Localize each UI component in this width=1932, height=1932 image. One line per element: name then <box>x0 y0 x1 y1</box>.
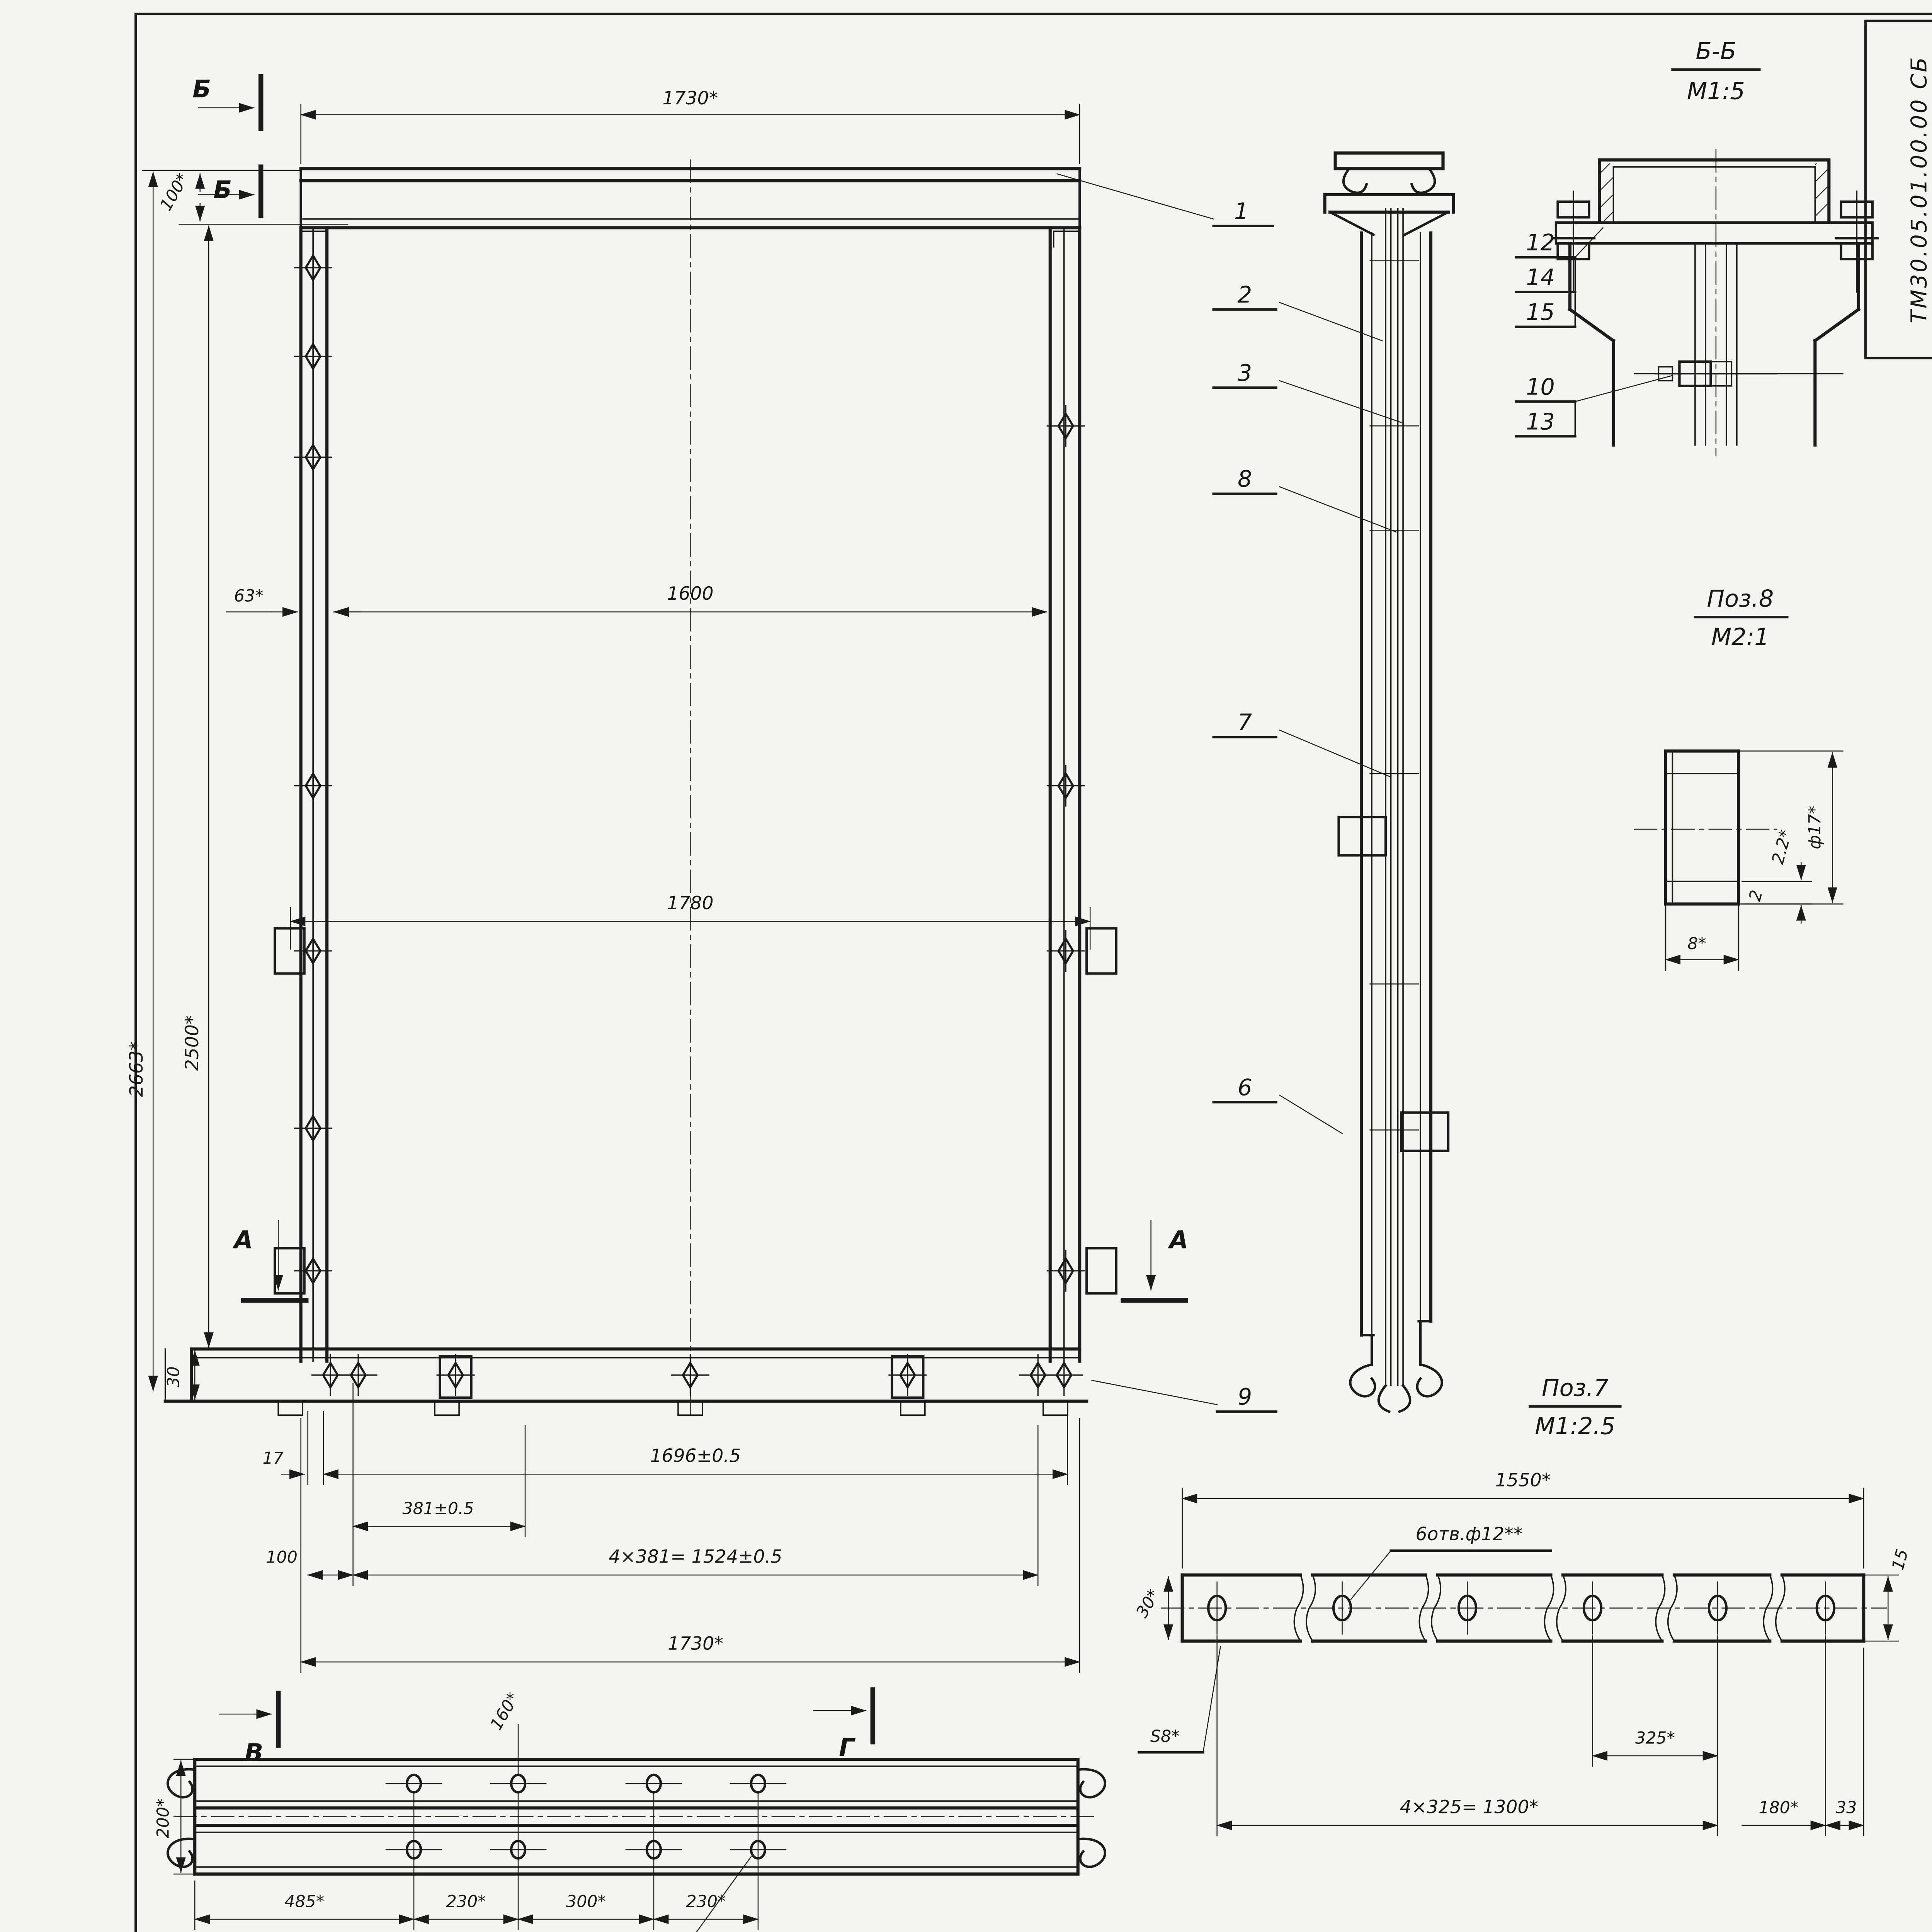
pos7-holes: 6отв.ф12** <box>1415 1524 1522 1545</box>
pos7-thickness: S8* <box>1150 1727 1180 1746</box>
section-marker-g: Г <box>839 1733 855 1762</box>
section-marker-b-upper: Б <box>192 75 211 103</box>
callout-2: 2 <box>1238 282 1252 308</box>
front-view: 1730* Б Б 100* 2663* 2500* 63* 1600 <box>126 75 1276 1767</box>
dim-width-outer: 1780 <box>667 893 713 914</box>
pos8-dimensions: ф17* 2.2* 2 8* <box>1665 751 1843 960</box>
pos7-dim-length: 1550* <box>1495 1470 1551 1491</box>
side-view-geometry <box>1325 153 1454 1412</box>
pos7-dim-step: 325* <box>1635 1729 1675 1748</box>
pos7-scale: М1:2.5 <box>1535 1413 1615 1440</box>
dim-bottom-span: 1696±0.5 <box>650 1446 741 1467</box>
plan-dim-160: 160* <box>486 1689 523 1733</box>
front-view-dimensions: 1730* Б Б 100* 2663* 2500* 63* 1600 <box>126 75 1276 1767</box>
side-view: 2 3 8 7 6 <box>1214 153 1454 1412</box>
dim-edge-17: 17 <box>262 1449 283 1468</box>
plan-view-dimensions: 200* 160* 485* 230* 300* 230* 8отв. ф14* <box>154 1689 758 1932</box>
section-marker-a-left: А <box>232 1226 253 1254</box>
callout-9: 9 <box>1238 1384 1252 1410</box>
pos7-title: Поз.7 <box>1542 1375 1609 1402</box>
pos8-detail: Поз.8 М2:1 ф17* 2.2* 2 8* <box>1634 585 1843 970</box>
dim-bottom-module: 4×381= 1524±0.5 <box>609 1546 782 1568</box>
callout-12: 12 <box>1526 230 1554 256</box>
callout-1: 1 <box>1234 198 1248 224</box>
dim-top-offset: 100* <box>156 170 193 214</box>
drawing-sheet: ТМ30.05.01.00.00 СБ <box>0 0 1932 1932</box>
pos7-dimensions: 1550* 6отв.ф12** 30* S8* 325* 4×325= 130… <box>1132 1470 1912 1836</box>
plan-dim-230a: 230* <box>446 1892 486 1911</box>
pos7-dim-180: 180* <box>1759 1798 1798 1818</box>
callout-3: 3 <box>1238 360 1252 386</box>
plan-dim-height: 200* <box>154 1799 173 1838</box>
drawing-canvas: ТМ30.05.01.00.00 СБ <box>0 0 1932 1932</box>
callout-6: 6 <box>1238 1074 1252 1100</box>
dim-rail-height: 30 <box>164 1366 184 1387</box>
plan-dim-485: 485* <box>284 1892 324 1911</box>
section-bb-geometry <box>1553 150 1878 456</box>
callout-8: 8 <box>1238 466 1252 492</box>
section-marker-b-lower: Б <box>213 176 232 204</box>
callout-14: 14 <box>1526 264 1554 291</box>
pos7-dim-33: 33 <box>1836 1798 1857 1818</box>
pos8-dim-wall: 2.2* <box>1768 828 1796 866</box>
plan-view-geometry <box>168 1759 1105 1874</box>
section-marker-v: В <box>245 1739 263 1767</box>
dim-height-total: 2663* <box>126 1041 147 1097</box>
callout-13: 13 <box>1526 408 1554 435</box>
callout-10: 10 <box>1526 374 1554 400</box>
dim-width-top: 1730* <box>663 88 718 109</box>
pos8-dim-width: 8* <box>1687 934 1706 953</box>
dim-bottom-step: 381±0.5 <box>402 1499 474 1519</box>
pos7-dim-module: 4×325= 1300* <box>1400 1797 1538 1818</box>
pos8-dim-2: 2 <box>1745 888 1767 903</box>
dim-profile-width: 63* <box>234 587 264 606</box>
pos8-scale: М2:1 <box>1711 624 1769 651</box>
corner-stamp-number: ТМ30.05.01.00.00 СБ <box>1906 56 1932 323</box>
section-bb-title: Б-Б <box>1696 38 1736 65</box>
dim-height-inner: 2500* <box>182 1015 203 1071</box>
sheet-frame: ТМ30.05.01.00.00 СБ <box>136 14 1932 1932</box>
callout-15: 15 <box>1526 299 1554 325</box>
section-marker-a-right: А <box>1167 1226 1188 1254</box>
dim-width-inner: 1600 <box>667 583 713 604</box>
pos7-detail: Поз.7 М1:2.5 1550* 6отв.ф12** 30* S8* <box>1132 1375 1912 1836</box>
pos7-geometry <box>1162 1575 1886 1641</box>
dim-bottom-total: 1730* <box>668 1633 723 1655</box>
pos7-dim-15: 15 <box>1888 1547 1912 1572</box>
dim-bottom-100: 100 <box>266 1548 298 1567</box>
pos7-dim-height: 30* <box>1132 1586 1163 1621</box>
plan-dim-230b: 230* <box>686 1892 726 1911</box>
section-bb: Б-Б М1:5 12 14 <box>1516 38 1878 456</box>
front-view-geometry <box>165 160 1116 1415</box>
pos8-title: Поз.8 <box>1707 585 1774 612</box>
section-bb-callouts: 12 14 15 10 13 <box>1516 228 1672 436</box>
side-bracket-right <box>1401 1112 1448 1151</box>
plan-view: 200* 160* 485* 230* 300* 230* 8отв. ф14* <box>154 1689 1105 1932</box>
pos8-dim-diameter: ф17* <box>1805 806 1825 849</box>
side-view-callouts: 2 3 8 7 6 <box>1214 282 1401 1134</box>
plan-dim-300: 300* <box>566 1892 606 1911</box>
callout-7: 7 <box>1238 709 1252 736</box>
section-bb-scale: М1:5 <box>1687 78 1745 105</box>
